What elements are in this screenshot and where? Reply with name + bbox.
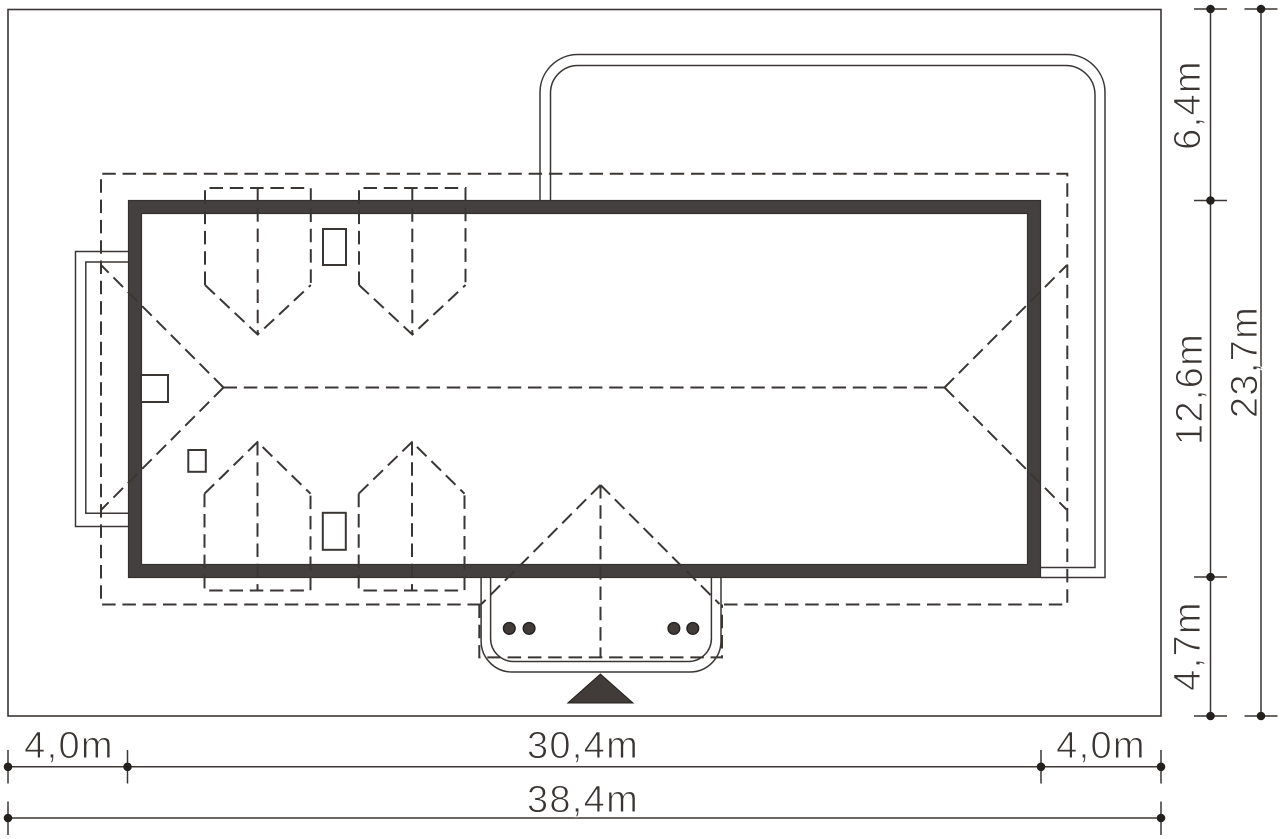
svg-text:4,0m: 4,0m xyxy=(24,725,114,767)
svg-text:6,4m: 6,4m xyxy=(1167,60,1209,150)
svg-text:38,4m: 38,4m xyxy=(527,779,639,821)
svg-text:23,7m: 23,7m xyxy=(1224,306,1266,418)
svg-text:4,0m: 4,0m xyxy=(1056,725,1146,767)
svg-text:4,7m: 4,7m xyxy=(1167,601,1209,691)
svg-text:30,4m: 30,4m xyxy=(527,725,639,767)
svg-text:12,6m: 12,6m xyxy=(1169,333,1211,445)
